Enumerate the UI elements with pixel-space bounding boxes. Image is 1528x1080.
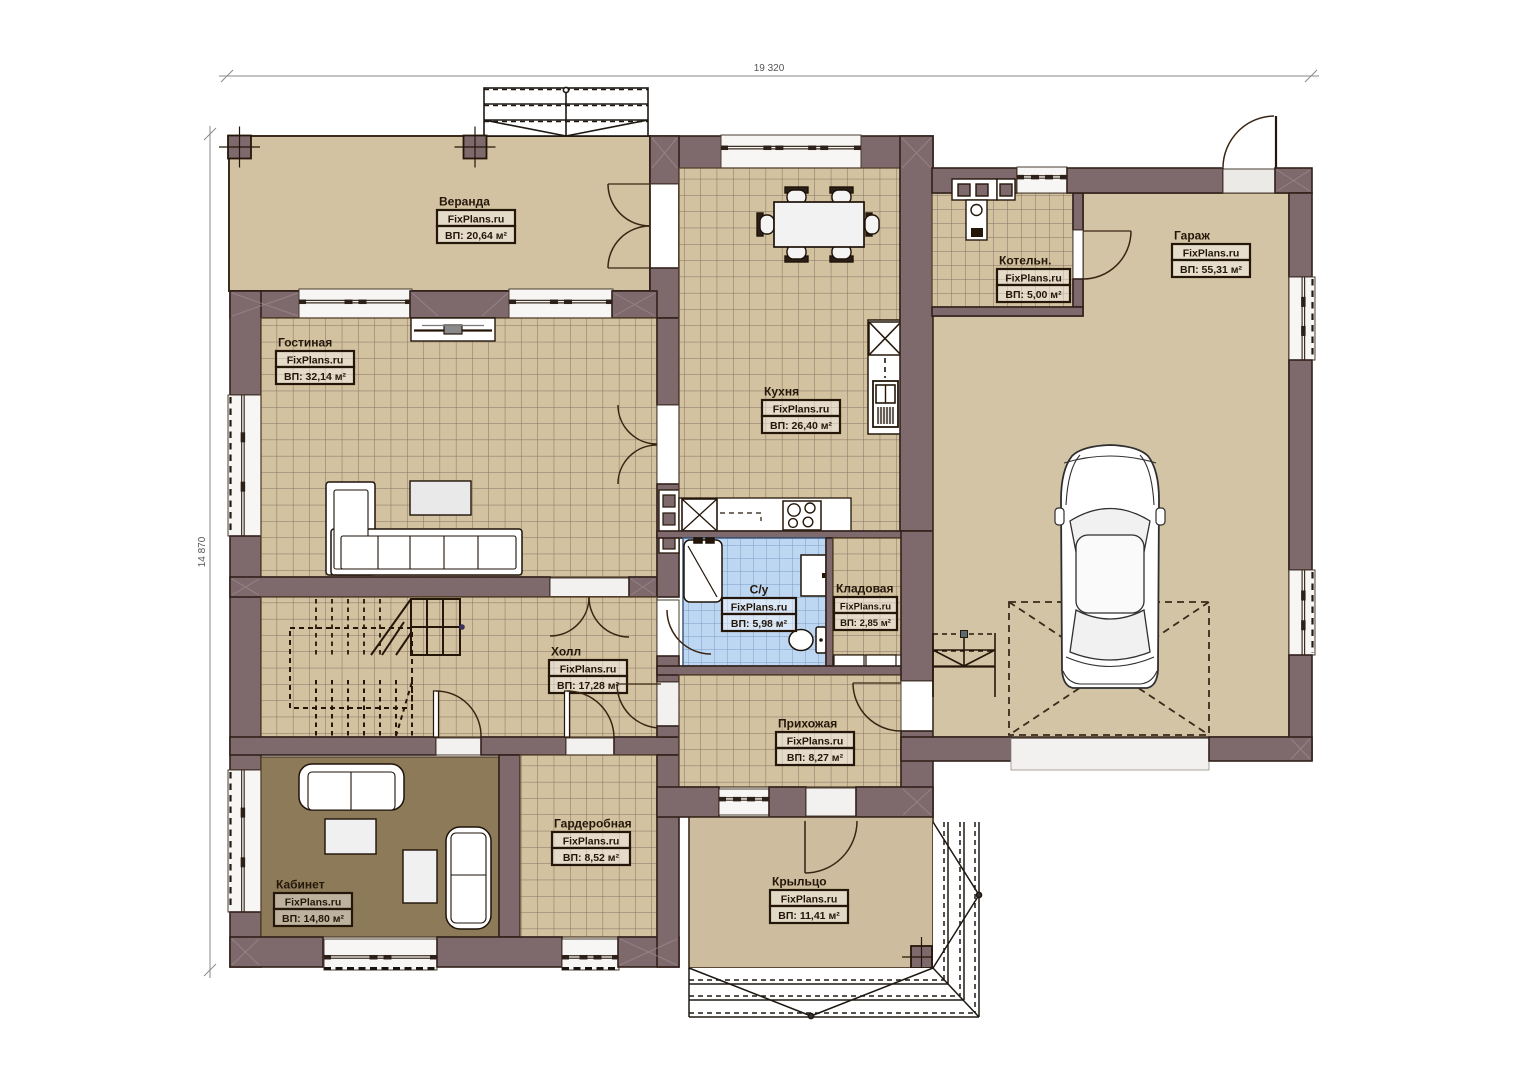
- svg-text:Гостиная: Гостиная: [278, 336, 332, 350]
- svg-text:FixPlans.ru: FixPlans.ru: [787, 736, 844, 748]
- svg-text:ВП: 5,00 м²: ВП: 5,00 м²: [1005, 289, 1062, 301]
- svg-text:Кухня: Кухня: [764, 385, 799, 399]
- svg-text:Холл: Холл: [551, 645, 581, 659]
- svg-text:FixPlans.ru: FixPlans.ru: [285, 897, 342, 909]
- svg-text:ВП: 14,80 м²: ВП: 14,80 м²: [282, 913, 345, 925]
- svg-text:Крыльцо: Крыльцо: [772, 875, 827, 889]
- svg-text:ВП: 8,27 м²: ВП: 8,27 м²: [787, 752, 844, 764]
- svg-text:Кабинет: Кабинет: [276, 878, 325, 892]
- svg-text:ВП: 55,31 м²: ВП: 55,31 м²: [1180, 264, 1243, 276]
- svg-text:14 870: 14 870: [197, 536, 208, 567]
- svg-text:Прихожая: Прихожая: [778, 717, 837, 731]
- svg-text:С/у: С/у: [750, 583, 769, 597]
- svg-text:ВП: 32,14 м²: ВП: 32,14 м²: [284, 371, 347, 383]
- svg-text:19 320: 19 320: [754, 63, 785, 74]
- svg-text:ВП: 17,28 м²: ВП: 17,28 м²: [557, 680, 620, 692]
- svg-text:FixPlans.ru: FixPlans.ru: [560, 664, 617, 676]
- svg-text:FixPlans.ru: FixPlans.ru: [1005, 273, 1062, 285]
- svg-text:FixPlans.ru: FixPlans.ru: [781, 894, 838, 906]
- svg-text:ВП: 8,52 м²: ВП: 8,52 м²: [563, 852, 620, 864]
- svg-text:Кладовая: Кладовая: [836, 582, 893, 596]
- svg-text:FixPlans.ru: FixPlans.ru: [840, 602, 891, 613]
- svg-text:Гараж: Гараж: [1174, 229, 1210, 243]
- svg-text:FixPlans.ru: FixPlans.ru: [1183, 248, 1240, 260]
- svg-text:ВП: 11,41 м²: ВП: 11,41 м²: [778, 910, 840, 922]
- svg-text:FixPlans.ru: FixPlans.ru: [448, 214, 505, 226]
- svg-text:Котельн.: Котельн.: [999, 254, 1052, 268]
- svg-text:Гардеробная: Гардеробная: [554, 817, 632, 831]
- svg-text:ВП: 2,85 м²: ВП: 2,85 м²: [840, 618, 891, 629]
- svg-text:ВП: 26,40 м²: ВП: 26,40 м²: [770, 420, 833, 432]
- svg-text:FixPlans.ru: FixPlans.ru: [773, 404, 830, 416]
- svg-text:Веранда: Веранда: [439, 195, 490, 209]
- svg-text:FixPlans.ru: FixPlans.ru: [287, 355, 344, 367]
- svg-text:ВП: 20,64 м²: ВП: 20,64 м²: [445, 230, 508, 242]
- svg-text:FixPlans.ru: FixPlans.ru: [563, 836, 620, 848]
- svg-text:ВП: 5,98 м²: ВП: 5,98 м²: [731, 618, 788, 630]
- svg-text:FixPlans.ru: FixPlans.ru: [731, 602, 788, 614]
